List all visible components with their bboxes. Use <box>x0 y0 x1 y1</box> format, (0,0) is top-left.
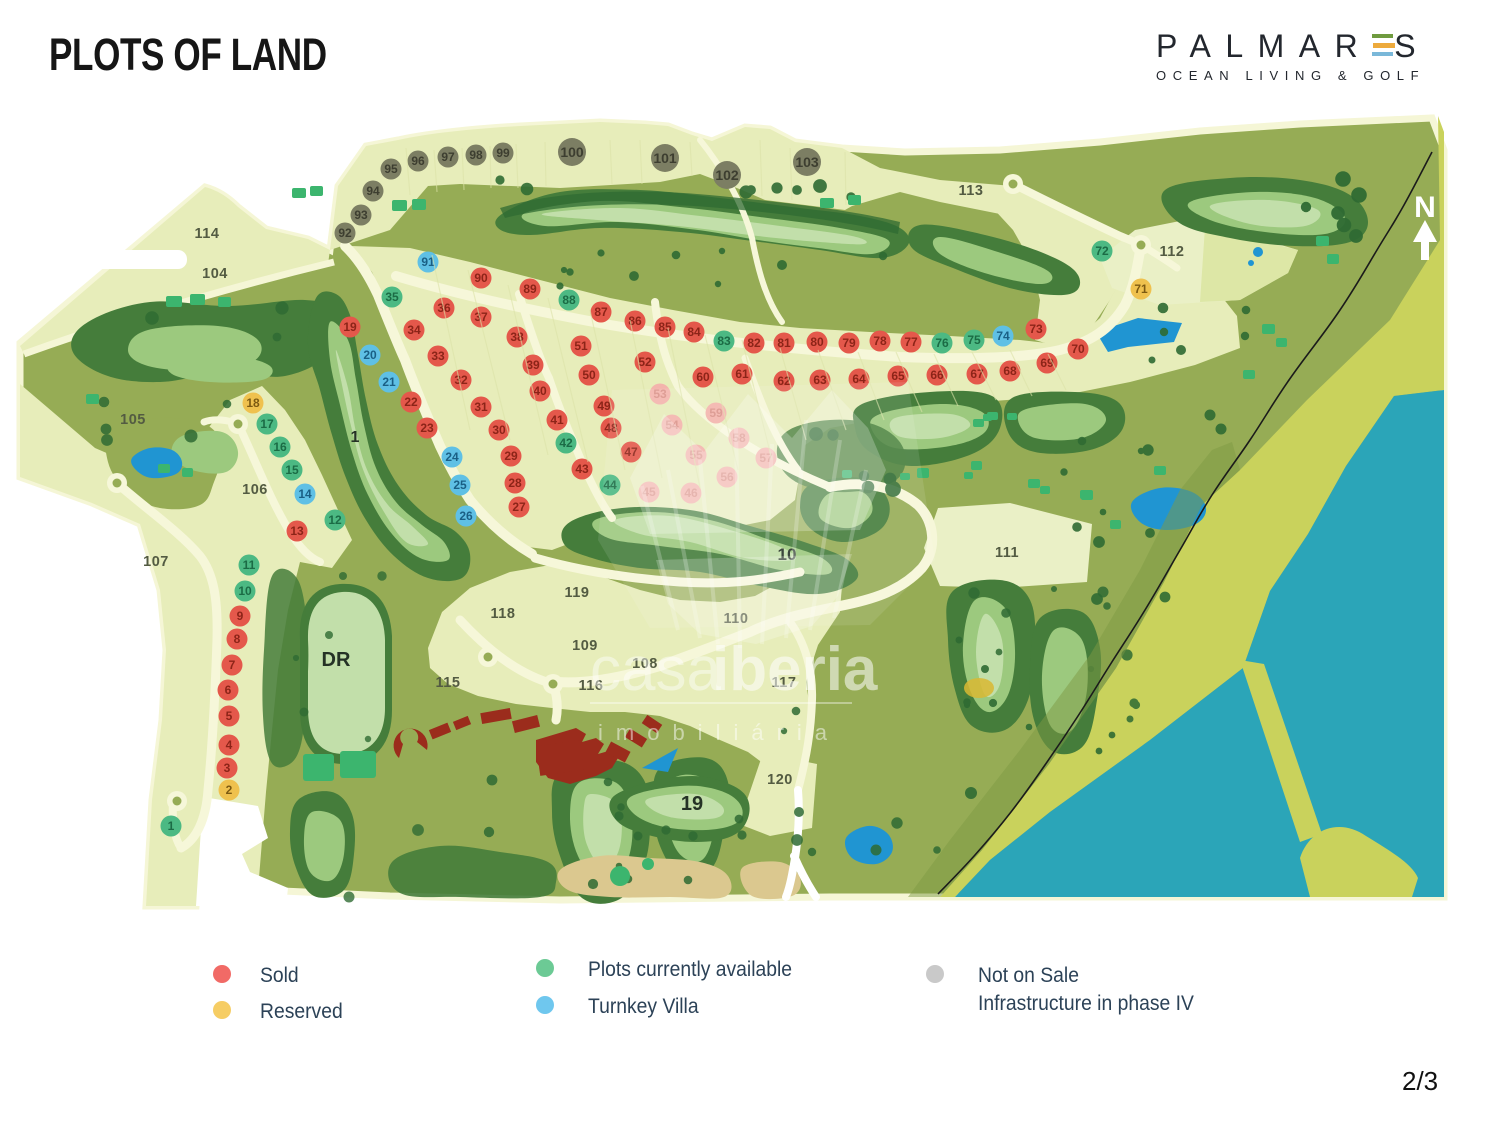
svg-text:N: N <box>1414 191 1436 224</box>
svg-text:16: 16 <box>273 440 287 454</box>
svg-text:90: 90 <box>474 271 488 285</box>
svg-text:26: 26 <box>459 509 473 523</box>
svg-text:51: 51 <box>574 339 588 353</box>
svg-text:120: 120 <box>767 772 793 788</box>
svg-text:96: 96 <box>411 154 425 168</box>
svg-text:71: 71 <box>1134 282 1148 296</box>
svg-text:9: 9 <box>237 609 244 623</box>
svg-text:78: 78 <box>873 334 887 348</box>
svg-text:imobiliária: imobiliária <box>598 720 840 745</box>
svg-text:19: 19 <box>681 793 703 815</box>
svg-text:89: 89 <box>523 282 537 296</box>
svg-text:4: 4 <box>226 738 233 752</box>
svg-text:28: 28 <box>508 476 522 490</box>
svg-text:52: 52 <box>638 355 652 369</box>
svg-text:iberia: iberia <box>712 635 878 704</box>
svg-text:100: 100 <box>560 144 584 160</box>
svg-text:20: 20 <box>363 348 377 362</box>
svg-text:97: 97 <box>441 150 455 164</box>
svg-text:101: 101 <box>653 150 677 166</box>
svg-text:82: 82 <box>747 336 761 350</box>
svg-text:76: 76 <box>935 336 949 350</box>
svg-text:99: 99 <box>496 146 510 160</box>
svg-text:42: 42 <box>559 436 573 450</box>
svg-text:2: 2 <box>226 783 233 797</box>
svg-text:13: 13 <box>290 524 304 538</box>
svg-text:98: 98 <box>469 148 483 162</box>
svg-text:8: 8 <box>234 632 241 646</box>
svg-text:27: 27 <box>512 500 526 514</box>
svg-text:1: 1 <box>351 429 360 446</box>
svg-text:105: 105 <box>120 412 146 428</box>
svg-text:61: 61 <box>735 367 749 381</box>
svg-text:111: 111 <box>995 545 1019 561</box>
svg-text:102: 102 <box>715 167 739 183</box>
svg-text:103: 103 <box>795 154 819 170</box>
svg-text:112: 112 <box>1160 244 1185 260</box>
svg-text:65: 65 <box>891 369 905 383</box>
svg-text:41: 41 <box>550 413 564 427</box>
svg-text:33: 33 <box>431 349 445 363</box>
svg-text:6: 6 <box>225 683 232 697</box>
svg-text:casa: casa <box>590 635 721 704</box>
svg-text:87: 87 <box>594 305 608 319</box>
svg-text:85: 85 <box>658 320 672 334</box>
svg-text:DR: DR <box>322 649 351 671</box>
svg-text:30: 30 <box>492 423 506 437</box>
svg-text:43: 43 <box>575 462 589 476</box>
svg-text:75: 75 <box>967 333 981 347</box>
svg-text:31: 31 <box>474 400 488 414</box>
svg-text:113: 113 <box>959 183 984 199</box>
svg-text:77: 77 <box>904 335 918 349</box>
svg-text:22: 22 <box>404 395 418 409</box>
svg-text:23: 23 <box>420 421 434 435</box>
svg-text:15: 15 <box>285 463 299 477</box>
svg-text:18: 18 <box>246 396 260 410</box>
svg-text:81: 81 <box>777 336 791 350</box>
svg-text:93: 93 <box>354 208 368 222</box>
svg-text:49: 49 <box>597 399 611 413</box>
svg-text:5: 5 <box>226 709 233 723</box>
svg-text:68: 68 <box>1003 364 1017 378</box>
svg-text:14: 14 <box>298 487 312 501</box>
svg-text:70: 70 <box>1071 342 1085 356</box>
svg-text:12: 12 <box>328 513 342 527</box>
svg-text:11: 11 <box>243 558 256 572</box>
svg-text:19: 19 <box>343 320 357 334</box>
svg-text:34: 34 <box>407 323 421 337</box>
svg-text:40: 40 <box>533 384 547 398</box>
svg-text:67: 67 <box>970 367 984 381</box>
svg-text:104: 104 <box>202 266 228 282</box>
svg-text:35: 35 <box>385 290 399 304</box>
svg-text:118: 118 <box>491 606 516 622</box>
svg-text:7: 7 <box>229 658 236 672</box>
svg-text:115: 115 <box>436 675 461 691</box>
svg-text:88: 88 <box>562 293 576 307</box>
svg-text:1: 1 <box>168 819 175 833</box>
svg-text:3: 3 <box>224 761 231 775</box>
svg-text:29: 29 <box>504 449 518 463</box>
svg-text:72: 72 <box>1095 244 1109 258</box>
svg-text:74: 74 <box>996 329 1010 343</box>
svg-text:25: 25 <box>453 478 467 492</box>
svg-text:94: 94 <box>366 184 380 198</box>
svg-text:80: 80 <box>810 335 824 349</box>
svg-text:50: 50 <box>582 368 596 382</box>
svg-text:17: 17 <box>260 417 274 431</box>
svg-text:79: 79 <box>842 336 856 350</box>
svg-text:106: 106 <box>242 482 268 498</box>
svg-text:84: 84 <box>687 325 701 339</box>
svg-text:73: 73 <box>1029 322 1043 336</box>
svg-text:10: 10 <box>238 584 252 598</box>
svg-text:83: 83 <box>717 334 731 348</box>
svg-text:92: 92 <box>338 226 352 240</box>
svg-text:107: 107 <box>143 554 169 570</box>
svg-text:95: 95 <box>384 162 398 176</box>
svg-text:114: 114 <box>195 226 220 242</box>
svg-text:24: 24 <box>445 450 459 464</box>
svg-text:21: 21 <box>382 375 396 389</box>
svg-text:60: 60 <box>696 370 710 384</box>
svg-text:119: 119 <box>565 585 590 601</box>
svg-text:32: 32 <box>454 373 468 387</box>
